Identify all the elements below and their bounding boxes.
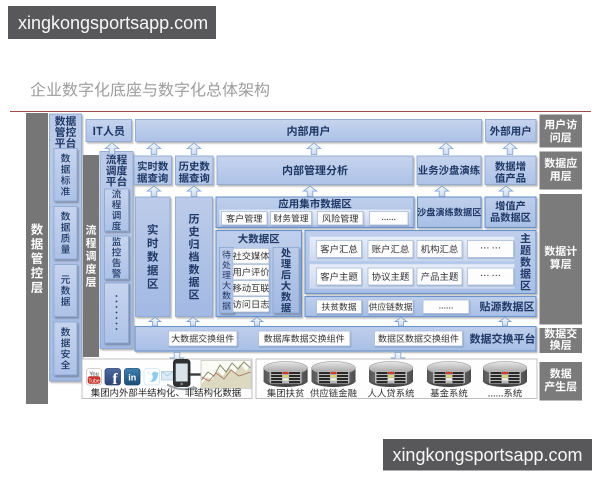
svg-text:xingkongsportsapp.com: xingkongsportsapp.com (392, 445, 582, 465)
svg-text:in: in (128, 373, 136, 383)
svg-text:You: You (89, 372, 98, 378)
svg-text:f: f (112, 371, 118, 388)
svg-text:xingkongsportsapp.com: xingkongsportsapp.com (18, 13, 208, 33)
svg-text:Tube: Tube (88, 379, 99, 385)
